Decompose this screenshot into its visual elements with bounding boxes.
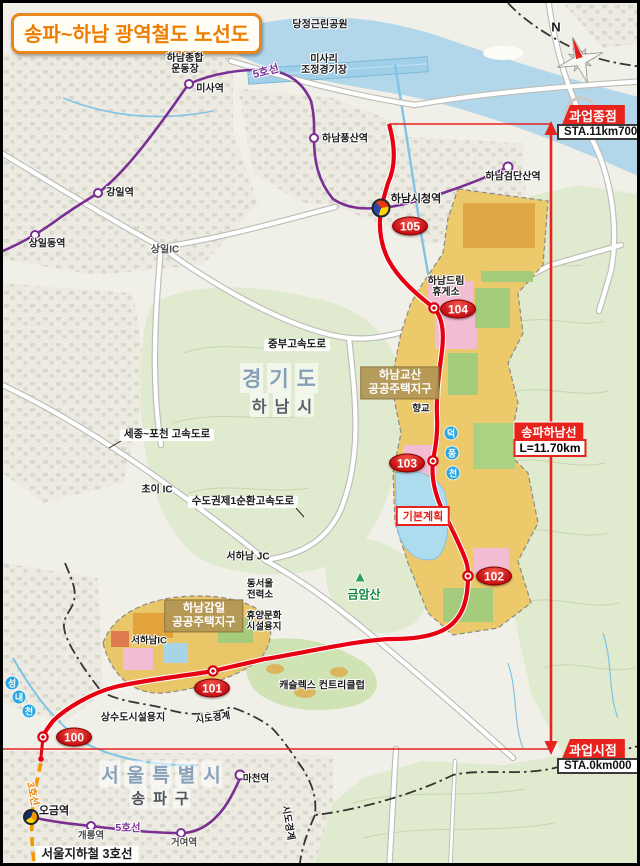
cityhall-transfer-marker xyxy=(372,199,391,218)
station-badge-100: 100 xyxy=(56,728,92,747)
gyosan-line2: 공공주택지구 xyxy=(368,383,431,397)
hanam-letter: 시 xyxy=(295,393,314,417)
rest-stop-label: 하남드림 휴게소 xyxy=(428,276,465,298)
resort-label: 휴양문화 시설용지 xyxy=(247,611,282,632)
mountain-icon: ▲ xyxy=(353,570,368,585)
line5-label-bottom: 5호선 xyxy=(115,823,140,835)
misari-line2: 조정경기장 xyxy=(301,65,347,76)
hyanggyo-label: 향교 xyxy=(412,405,429,416)
resort-line2: 시설용지 xyxy=(247,622,282,633)
region-gyeonggi: 경 기 도 xyxy=(240,363,318,393)
seoul-letter: 특 xyxy=(150,761,171,788)
region-seoul: 서 울 특 별 시 xyxy=(99,761,222,788)
sports-line2: 운동장 xyxy=(167,64,204,75)
station-badge-101: 101 xyxy=(194,679,230,698)
terminus-end-sta: STA.11km700 xyxy=(557,124,640,140)
misari-line1: 미사리 xyxy=(301,54,347,65)
seoul-letter: 울 xyxy=(125,761,146,788)
terminus-start-sta: STA.0km000 xyxy=(557,758,639,774)
gyeonggi-letter: 기 xyxy=(267,363,290,393)
station-geoyeo: 거여역 xyxy=(171,839,197,850)
castlex-label: 캐슬렉스 컨트리클럽 xyxy=(279,680,365,691)
gamil-line1: 하남감일 xyxy=(172,602,235,616)
station-badge-104: 104 xyxy=(440,300,476,319)
gyeonggi-letter: 도 xyxy=(295,363,318,393)
basic-plan-box: 기본계획 xyxy=(396,506,450,526)
seoul-letter: 시 xyxy=(201,761,222,788)
dream-line2: 휴게소 xyxy=(428,287,465,298)
ogeum-transfer-marker xyxy=(23,809,39,825)
deokpung-char: 덕 xyxy=(445,427,458,440)
station-gaerong: 개롱역 xyxy=(78,832,104,843)
deokpung-char: 천 xyxy=(447,467,460,480)
dream-line1: 하남드림 xyxy=(428,276,465,287)
station-badge-102: 102 xyxy=(476,567,512,586)
seongnae-char: 성 xyxy=(6,677,19,690)
park-label: 당정근린공원 xyxy=(292,19,347,30)
sports-complex-label: 하남종합 운동장 xyxy=(167,53,204,75)
seoul-letter: 별 xyxy=(176,761,197,788)
misari-label: 미사리 조정경기장 xyxy=(301,54,347,76)
sports-line1: 하남종합 xyxy=(167,53,204,64)
seohanam-jc-label: 서하남 JC xyxy=(226,551,269,562)
sunhwan-expwy-label: 수도권제1순환고속도로 xyxy=(188,496,298,508)
seoul-letter: 서 xyxy=(99,761,120,788)
power-line2: 전력소 xyxy=(247,590,273,601)
songpa-letter: 구 xyxy=(173,788,191,809)
deokpung-char: 풍 xyxy=(446,447,459,460)
region-songpa: 송 파 구 xyxy=(129,788,190,809)
gyosan-district-label: 하남교산 공공주택지구 xyxy=(360,366,439,399)
hanam-letter: 남 xyxy=(273,393,292,417)
station-badge-105: 105 xyxy=(392,217,428,236)
station-macheon: 마천역 xyxy=(243,775,269,786)
songpa-letter: 송 xyxy=(129,788,147,809)
seongnae-char: 천 xyxy=(23,705,36,718)
station-cityhall: 하남시청역 xyxy=(391,193,442,205)
gamil-district-label: 하남감일 공공주택지구 xyxy=(164,599,243,632)
jungbu-expwy-label: 중부고속도로 xyxy=(264,339,330,351)
line-length-box: L=11.70km xyxy=(513,439,586,457)
seohanam-ic-label: 서하남IC xyxy=(131,637,167,648)
geumamsan-label: 금암산 xyxy=(347,588,380,601)
line3-name-box: 서울지하철 3호선 xyxy=(36,846,139,862)
station-sangildong: 상일동역 xyxy=(29,238,66,249)
map-title: 송파~하남 광역철도 노선도 xyxy=(11,13,262,54)
region-hanam: 하 남 시 xyxy=(250,393,314,417)
songpa-letter: 파 xyxy=(151,788,169,809)
station-ogeum: 오금역 xyxy=(39,805,69,817)
choi-ic-label: 초이 IC xyxy=(141,484,172,495)
hanam-letter: 하 xyxy=(250,393,269,417)
seongnae-char: 내 xyxy=(13,691,26,704)
power-plant-label: 동서울 전력소 xyxy=(247,579,273,600)
station-pungsan: 하남풍산역 xyxy=(322,133,368,144)
station-badge-103: 103 xyxy=(389,454,425,473)
compass-n-label: N xyxy=(551,21,560,36)
station-misa: 미사역 xyxy=(196,83,224,94)
gamil-line2: 공공주택지구 xyxy=(172,616,235,630)
sangil-ic-label: 상일IC xyxy=(151,244,179,255)
gyosan-line1: 하남교산 xyxy=(368,369,431,383)
route-map: 송파~하남 광역철도 노선도 당정근린공원 하남종합 운동장 미사리 조정경기장… xyxy=(0,0,640,866)
station-geomdansan: 하남검단산역 xyxy=(485,171,540,182)
station-gangil: 강일역 xyxy=(106,187,134,198)
waterworks-label: 상수도시설용지 xyxy=(101,712,165,723)
gyeonggi-letter: 경 xyxy=(240,363,263,393)
sejong-pocheon-label: 세종~포천 고속도로 xyxy=(120,429,214,441)
